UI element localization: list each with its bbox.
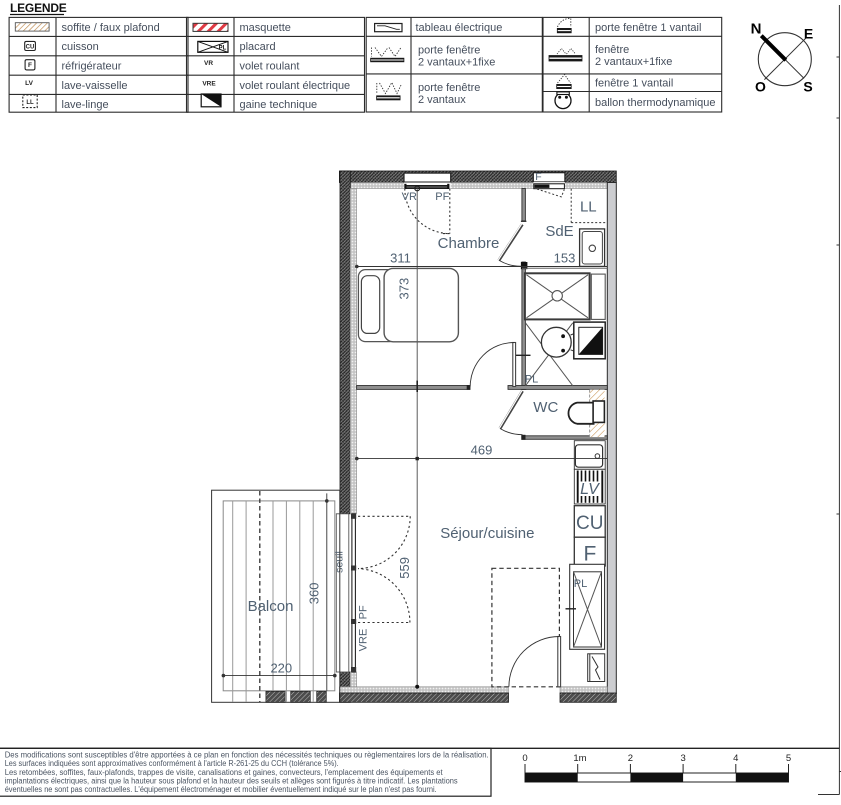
svg-text:Balcon: Balcon <box>248 598 294 615</box>
svg-text:lave-linge: lave-linge <box>62 99 109 111</box>
svg-text:2 vantaux+1fixe: 2 vantaux+1fixe <box>418 57 495 69</box>
svg-text:360: 360 <box>307 583 322 605</box>
svg-text:volet roulant: volet roulant <box>240 61 300 73</box>
svg-text:gaine technique: gaine technique <box>240 99 318 111</box>
svg-text:153: 153 <box>554 250 576 265</box>
svg-text:2: 2 <box>628 753 633 764</box>
svg-text:fenêtre: fenêtre <box>595 44 629 56</box>
svg-text:F: F <box>535 171 541 183</box>
svg-text:4: 4 <box>733 753 738 764</box>
svg-text:CU: CU <box>26 44 35 50</box>
svg-text:469: 469 <box>471 442 493 457</box>
svg-text:559: 559 <box>397 557 412 579</box>
svg-text:porte fenêtre: porte fenêtre <box>418 44 480 56</box>
svg-text:LL: LL <box>580 199 597 216</box>
svg-text:LL: LL <box>26 100 34 106</box>
svg-text:N: N <box>751 20 762 37</box>
svg-text:LV: LV <box>580 481 600 498</box>
svg-text:réfrigérateur: réfrigérateur <box>62 61 122 73</box>
svg-text:éventuelles ne sont pas contra: éventuelles ne sont pas contractuelles. … <box>5 785 437 794</box>
svg-text:PL: PL <box>219 46 227 52</box>
svg-text:O: O <box>755 79 766 95</box>
svg-text:soffite / faux plafond: soffite / faux plafond <box>62 22 160 34</box>
svg-text:3: 3 <box>680 753 685 764</box>
svg-text:VRE: VRE <box>202 80 216 87</box>
svg-text:PF: PF <box>435 191 449 203</box>
svg-text:masquette: masquette <box>240 22 291 34</box>
svg-text:VR: VR <box>204 60 213 67</box>
svg-text:2 vantaux: 2 vantaux <box>418 94 466 106</box>
svg-text:porte fenêtre 1 vantail: porte fenêtre 1 vantail <box>595 22 701 34</box>
svg-text:220: 220 <box>270 661 292 676</box>
svg-text:CU: CU <box>576 513 603 534</box>
svg-text:Séjour/cuisine: Séjour/cuisine <box>440 525 534 542</box>
svg-text:2 vantaux+1fixe: 2 vantaux+1fixe <box>595 56 672 68</box>
svg-text:F: F <box>28 62 32 69</box>
svg-text:S: S <box>803 79 812 95</box>
svg-text:cuisson: cuisson <box>62 41 99 53</box>
svg-text:tableau électrique: tableau électrique <box>416 22 503 34</box>
svg-text:VRE: VRE <box>358 629 370 652</box>
svg-text:SdE: SdE <box>545 223 573 240</box>
svg-text:PL: PL <box>574 578 587 590</box>
svg-text:LEGENDE: LEGENDE <box>10 1 67 15</box>
svg-text:WC: WC <box>533 399 558 416</box>
svg-text:373: 373 <box>397 278 412 300</box>
svg-text:placard: placard <box>240 41 276 53</box>
svg-text:5: 5 <box>786 753 791 764</box>
svg-text:fenêtre 1 vantail: fenêtre 1 vantail <box>595 78 673 90</box>
svg-text:PF: PF <box>358 605 370 619</box>
svg-text:PL: PL <box>525 373 538 385</box>
svg-text:0: 0 <box>522 753 527 764</box>
svg-text:LV: LV <box>25 80 33 87</box>
svg-text:311: 311 <box>390 250 411 265</box>
svg-text:1m: 1m <box>573 753 586 764</box>
svg-text:volet roulant électrique: volet roulant électrique <box>240 80 351 92</box>
svg-text:porte fenêtre: porte fenêtre <box>418 82 480 94</box>
svg-text:ballon thermodynamique: ballon thermodynamique <box>595 97 715 109</box>
svg-text:VR: VR <box>402 191 417 203</box>
svg-text:E: E <box>804 26 813 42</box>
svg-text:Chambre: Chambre <box>438 235 500 252</box>
svg-text:F: F <box>583 543 596 566</box>
svg-text:lave-vaisselle: lave-vaisselle <box>62 80 128 92</box>
